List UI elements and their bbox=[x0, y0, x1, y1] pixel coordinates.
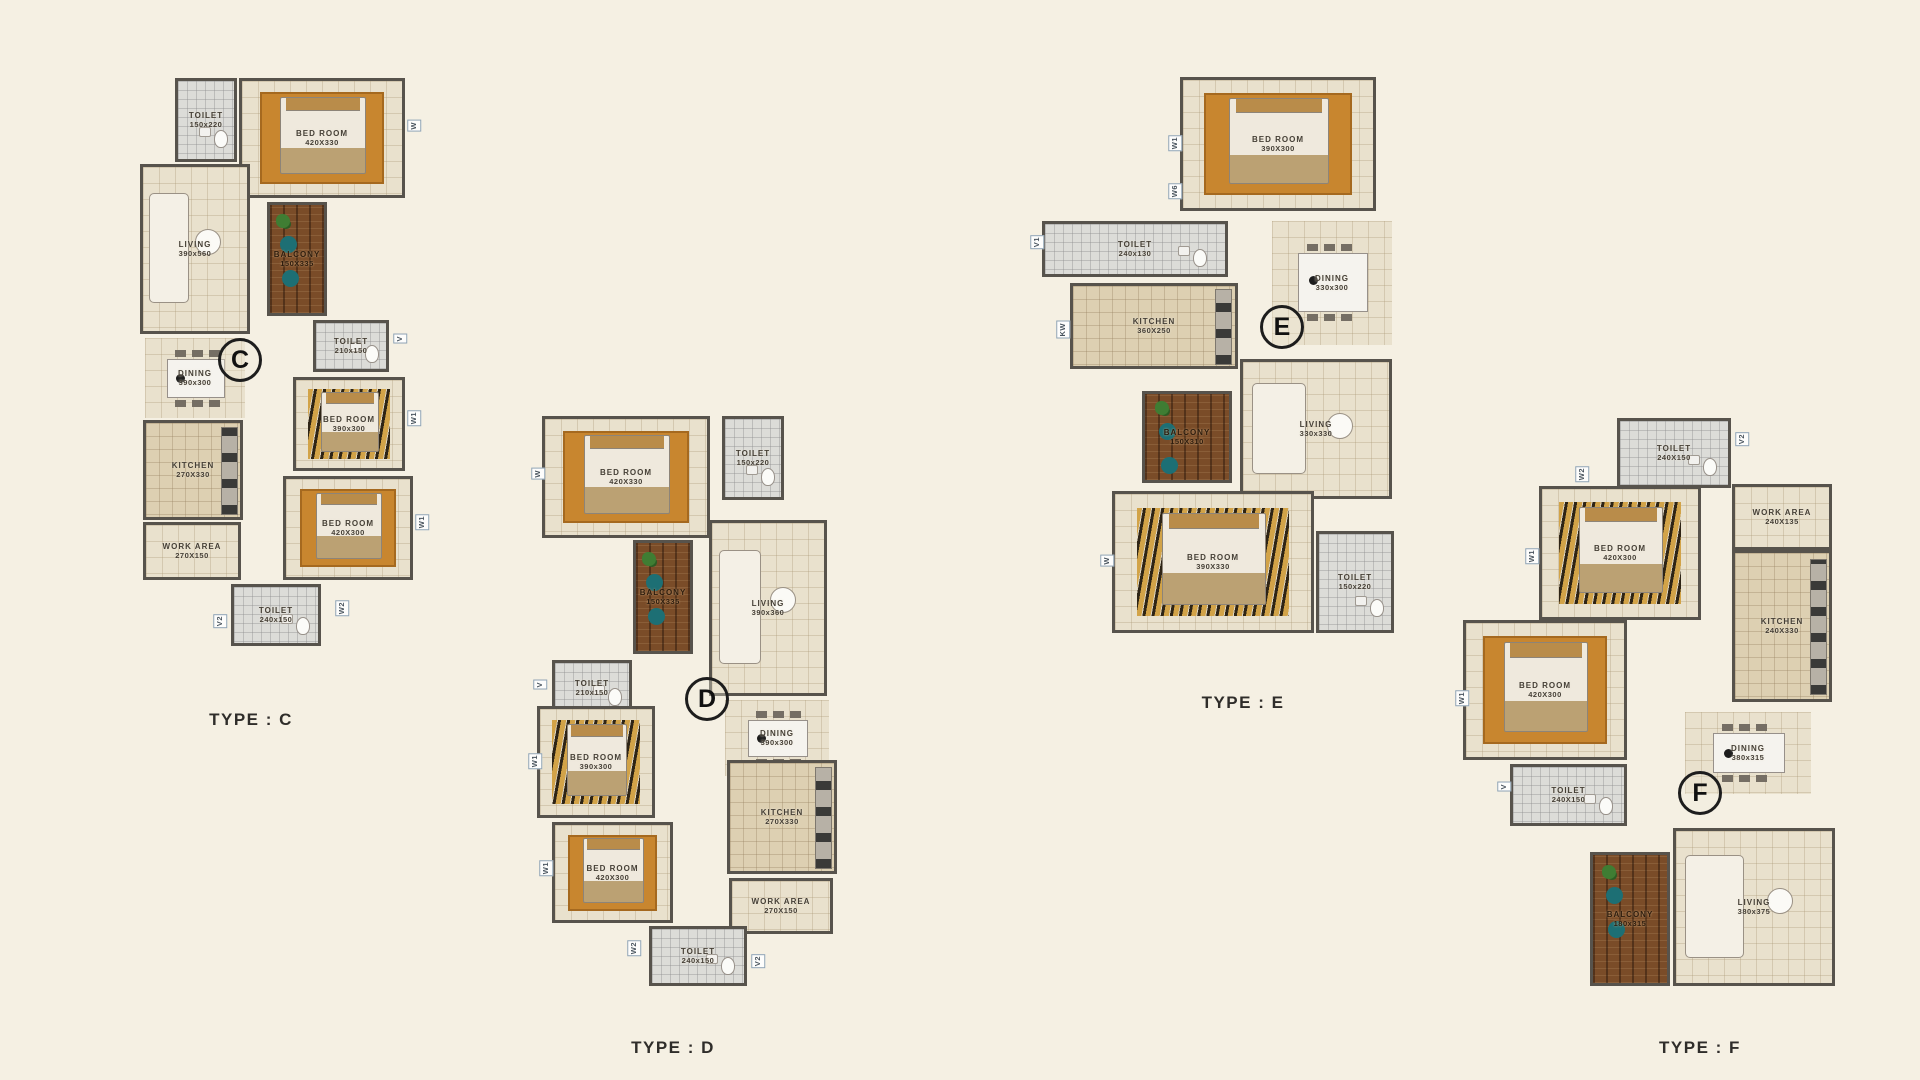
room-name: TOILET bbox=[1551, 786, 1585, 795]
room-name: BED ROOM bbox=[1187, 553, 1239, 562]
room-dims: 240x130 bbox=[1118, 249, 1152, 258]
window-label-w1: W1 bbox=[539, 860, 553, 876]
counter-furniture-icon bbox=[221, 427, 238, 515]
room-name: BED ROOM bbox=[570, 753, 622, 762]
room-label: TOILET240X150 bbox=[1551, 786, 1585, 804]
room-label: BED ROOM420X330 bbox=[296, 129, 348, 147]
room-bed-room: BED ROOM420X330 bbox=[239, 78, 405, 198]
plant-furniture-icon bbox=[276, 214, 290, 228]
room-dims: 150x220 bbox=[1338, 582, 1372, 591]
room-label: DINING380x315 bbox=[1731, 744, 1765, 762]
room-name: WORK AREA bbox=[163, 542, 222, 551]
room-label: BED ROOM420X330 bbox=[600, 468, 652, 486]
room-label: BED ROOM420X300 bbox=[1519, 681, 1571, 699]
room-dims: 240X330 bbox=[1761, 626, 1804, 635]
room-dims: 390x360 bbox=[752, 608, 785, 617]
room-name: TOILET bbox=[736, 449, 770, 458]
room-living: LIVING380x375 bbox=[1673, 828, 1835, 986]
room-label: TOILET150x220 bbox=[736, 449, 770, 467]
room-label: TOILET240x150 bbox=[681, 947, 715, 965]
window-label-w6: W6 bbox=[1168, 183, 1182, 199]
window-label-w1: W1 bbox=[528, 753, 542, 769]
room-bed-room: BED ROOM420X300 bbox=[552, 822, 673, 923]
room-toilet: TOILET150x220 bbox=[175, 78, 237, 162]
window-label-v: V bbox=[1497, 782, 1511, 792]
room-label: KITCHEN240X330 bbox=[1761, 617, 1804, 635]
room-kitchen: KITCHEN270X330 bbox=[727, 760, 837, 874]
window-label-w2: W2 bbox=[627, 940, 641, 956]
window-label-w: W bbox=[407, 120, 421, 132]
room-dims: 390x560 bbox=[179, 249, 212, 258]
room-name: LIVING bbox=[752, 599, 785, 608]
floorplan-sheet: TOILET150x220BED ROOM420X330LIVING390x56… bbox=[0, 0, 1920, 1080]
room-dims: 380x315 bbox=[1731, 753, 1765, 762]
sofa-furniture-icon bbox=[1252, 383, 1307, 473]
wc-furniture-icon bbox=[214, 130, 228, 148]
room-name: KITCHEN bbox=[1133, 317, 1176, 326]
room-name: DINING bbox=[1731, 744, 1765, 753]
plan-type-label-E: TYPE : E bbox=[1202, 693, 1285, 713]
room-toilet: TOILET240X150 bbox=[1617, 418, 1731, 488]
window-label-w: W bbox=[1100, 555, 1114, 567]
room-bed-room: BED ROOM390X300 bbox=[1180, 77, 1376, 211]
room-dims: 390x300 bbox=[570, 762, 622, 771]
sofa-furniture-icon bbox=[1685, 855, 1743, 957]
room-dims: 210x150 bbox=[575, 688, 609, 697]
room-name: TOILET bbox=[334, 337, 368, 346]
room-name: KITCHEN bbox=[761, 808, 804, 817]
room-label: TOILET240x150 bbox=[259, 606, 293, 624]
room-label: BED ROOM420X300 bbox=[1594, 544, 1646, 562]
room-name: DINING bbox=[178, 369, 212, 378]
room-label: DINING390x300 bbox=[760, 729, 794, 747]
plant-furniture-icon bbox=[1602, 865, 1616, 879]
room-dims: 390X330 bbox=[1187, 562, 1239, 571]
room-label: BED ROOM390X330 bbox=[1187, 553, 1239, 571]
plant-furniture-icon bbox=[1155, 401, 1169, 415]
room-name: BED ROOM bbox=[296, 129, 348, 138]
plan-type-label-C: TYPE : C bbox=[209, 710, 293, 730]
window-label-v2: V2 bbox=[1735, 432, 1749, 446]
window-label-w2: W2 bbox=[1575, 466, 1589, 482]
window-label-kw: KW bbox=[1056, 321, 1070, 339]
room-label: TOILET150x220 bbox=[1338, 573, 1372, 591]
room-name: KITCHEN bbox=[1761, 617, 1804, 626]
room-label: BALCONY150X335 bbox=[640, 588, 687, 606]
room-dims: 330x330 bbox=[1300, 429, 1333, 438]
room-work-area: WORK AREA240X135 bbox=[1732, 484, 1832, 550]
room-name: BED ROOM bbox=[587, 864, 639, 873]
room-name: TOILET bbox=[1657, 444, 1691, 453]
room-kitchen: KITCHEN360X250 bbox=[1070, 283, 1238, 369]
room-label: BALCONY150X310 bbox=[1164, 428, 1211, 446]
room-name: TOILET bbox=[189, 111, 223, 120]
room-label: BALCONY150X335 bbox=[274, 250, 321, 268]
room-name: BED ROOM bbox=[1519, 681, 1571, 690]
floorplan-C: TOILET150x220BED ROOM420X330LIVING390x56… bbox=[135, 62, 435, 690]
room-dims: 420X300 bbox=[1519, 690, 1571, 699]
window-label-v1: V1 bbox=[1030, 235, 1044, 249]
room-balcony: BALCONY150X310 bbox=[1142, 391, 1232, 483]
room-dims: 150x220 bbox=[736, 458, 770, 467]
room-name: LIVING bbox=[1300, 420, 1333, 429]
counter-furniture-icon bbox=[1215, 289, 1232, 365]
wc-furniture-icon bbox=[721, 957, 735, 975]
window-label-w: W bbox=[531, 468, 545, 480]
counter-furniture-icon bbox=[815, 767, 832, 868]
room-bed-room: BED ROOM420X330 bbox=[542, 416, 710, 538]
room-toilet: TOILET210x150 bbox=[313, 320, 389, 372]
wc-furniture-icon bbox=[1193, 249, 1207, 267]
room-name: BED ROOM bbox=[1594, 544, 1646, 553]
room-toilet: TOILET240x130 bbox=[1042, 221, 1228, 277]
room-label: WORK AREA270X150 bbox=[163, 542, 222, 560]
floorplan-D: BED ROOM420X330TOILET150x220BALCONY150X3… bbox=[527, 408, 847, 993]
room-dims: 270X150 bbox=[752, 906, 811, 915]
room-label: BED ROOM390x300 bbox=[570, 753, 622, 771]
window-label-v: V bbox=[393, 334, 407, 344]
room-name: TOILET bbox=[1118, 240, 1152, 249]
room-label: WORK AREA270X150 bbox=[752, 897, 811, 915]
room-label: LIVING380x375 bbox=[1738, 898, 1771, 916]
room-balcony: BALCONY150X335 bbox=[267, 202, 327, 316]
room-dims: 390x300 bbox=[178, 378, 212, 387]
room-dims: 150X335 bbox=[640, 597, 687, 606]
plan-marker-C: C bbox=[218, 338, 262, 382]
room-dims: 420X300 bbox=[1594, 553, 1646, 562]
window-label-v2: V2 bbox=[751, 954, 765, 968]
room-bed-room: BED ROOM420X300 bbox=[1463, 620, 1627, 760]
room-toilet: TOILET240X150 bbox=[1510, 764, 1627, 826]
room-label: TOILET240x130 bbox=[1118, 240, 1152, 258]
window-label-w1: W1 bbox=[415, 514, 429, 530]
room-name: DINING bbox=[760, 729, 794, 738]
room-label: DINING390x300 bbox=[178, 369, 212, 387]
window-label-v: V bbox=[533, 680, 547, 690]
room-kitchen: KITCHEN270X330 bbox=[143, 420, 243, 520]
room-label: BED ROOM390x300 bbox=[323, 415, 375, 433]
room-label: KITCHEN270X330 bbox=[761, 808, 804, 826]
room-dims: 270X150 bbox=[163, 551, 222, 560]
room-label: BALCONY180x315 bbox=[1607, 910, 1654, 928]
room-dims: 240x150 bbox=[259, 615, 293, 624]
room-dims: 420X300 bbox=[587, 873, 639, 882]
room-dims: 420X300 bbox=[322, 528, 374, 537]
room-name: BED ROOM bbox=[1252, 135, 1304, 144]
room-toilet: TOILET240x150 bbox=[231, 584, 321, 646]
room-name: BED ROOM bbox=[600, 468, 652, 477]
room-living: LIVING330x330 bbox=[1240, 359, 1392, 499]
room-label: LIVING330x330 bbox=[1300, 420, 1333, 438]
room-bed-room: BED ROOM390X330 bbox=[1112, 491, 1314, 633]
window-label-w1: W1 bbox=[407, 410, 421, 426]
room-work-area: WORK AREA270X150 bbox=[143, 522, 241, 580]
room-name: BED ROOM bbox=[323, 415, 375, 424]
room-name: LIVING bbox=[1738, 898, 1771, 907]
room-dims: 240X135 bbox=[1753, 517, 1812, 526]
room-label: LIVING390x360 bbox=[752, 599, 785, 617]
room-label: KITCHEN360X250 bbox=[1133, 317, 1176, 335]
room-name: TOILET bbox=[1338, 573, 1372, 582]
room-label: TOILET240X150 bbox=[1657, 444, 1691, 462]
wc-furniture-icon bbox=[608, 688, 622, 706]
room-label: BED ROOM420X300 bbox=[587, 864, 639, 882]
room-balcony: BALCONY180x315 bbox=[1590, 852, 1670, 986]
room-bed-room: BED ROOM390x300 bbox=[537, 706, 655, 818]
room-dims: 150X310 bbox=[1164, 437, 1211, 446]
room-name: KITCHEN bbox=[172, 461, 215, 470]
room-dims: 380x375 bbox=[1738, 907, 1771, 916]
room-dims: 240X150 bbox=[1657, 453, 1691, 462]
room-dims: 180x315 bbox=[1607, 919, 1654, 928]
room-bed-room: BED ROOM420X300 bbox=[283, 476, 413, 580]
room-name: DINING bbox=[1315, 274, 1349, 283]
room-label: TOILET210x150 bbox=[334, 337, 368, 355]
window-label-w1: W1 bbox=[1525, 548, 1539, 564]
room-label: LIVING390x560 bbox=[179, 240, 212, 258]
room-name: BALCONY bbox=[274, 250, 321, 259]
room-dims: 360X250 bbox=[1133, 326, 1176, 335]
plan-type-label-D: TYPE : D bbox=[631, 1038, 715, 1058]
room-name: TOILET bbox=[259, 606, 293, 615]
counter-furniture-icon bbox=[1810, 559, 1827, 695]
plant-furniture-icon bbox=[642, 552, 656, 566]
room-name: TOILET bbox=[681, 947, 715, 956]
room-balcony: BALCONY150X335 bbox=[633, 540, 693, 654]
room-dims: 240x150 bbox=[681, 956, 715, 965]
room-toilet: TOILET240x150 bbox=[649, 926, 747, 986]
room-label: BED ROOM390X300 bbox=[1252, 135, 1304, 153]
room-name: LIVING bbox=[179, 240, 212, 249]
room-name: BALCONY bbox=[1607, 910, 1654, 919]
room-dims: 390X300 bbox=[1252, 144, 1304, 153]
window-label-v2: V2 bbox=[213, 614, 227, 628]
floorplan-E: BED ROOM390X300TOILET240x130DINING330x30… bbox=[1030, 73, 1400, 663]
room-dims: 390x300 bbox=[760, 738, 794, 747]
window-label-w2: W2 bbox=[335, 600, 349, 616]
window-label-w1: W1 bbox=[1455, 690, 1469, 706]
room-dims: 210x150 bbox=[334, 346, 368, 355]
wc-furniture-icon bbox=[1599, 797, 1613, 815]
floorplan-F: TOILET240X150BED ROOM420X300WORK AREA240… bbox=[1455, 404, 1841, 994]
wc-furniture-icon bbox=[1703, 458, 1717, 476]
wc-furniture-icon bbox=[296, 617, 310, 635]
room-dims: 150x220 bbox=[189, 120, 223, 129]
room-dims: 240X150 bbox=[1551, 795, 1585, 804]
room-label: TOILET150x220 bbox=[189, 111, 223, 129]
room-name: BALCONY bbox=[640, 588, 687, 597]
plan-marker-D: D bbox=[685, 677, 729, 721]
room-dims: 330x300 bbox=[1315, 283, 1349, 292]
room-dims: 150X335 bbox=[274, 259, 321, 268]
room-name: WORK AREA bbox=[752, 897, 811, 906]
room-label: TOILET210x150 bbox=[575, 679, 609, 697]
wc-furniture-icon bbox=[761, 468, 775, 486]
room-dims: 270X330 bbox=[761, 817, 804, 826]
room-dims: 420X330 bbox=[296, 138, 348, 147]
room-toilet: TOILET150x220 bbox=[722, 416, 784, 500]
room-label: DINING330x300 bbox=[1315, 274, 1349, 292]
room-living: LIVING390x560 bbox=[140, 164, 250, 334]
room-label: BED ROOM420X300 bbox=[322, 519, 374, 537]
room-toilet: TOILET150x220 bbox=[1316, 531, 1394, 633]
room-bed-room: BED ROOM420X300 bbox=[1539, 486, 1701, 620]
room-living: LIVING390x360 bbox=[709, 520, 827, 696]
room-name: WORK AREA bbox=[1753, 508, 1812, 517]
room-dims: 390x300 bbox=[323, 424, 375, 433]
plan-marker-F: F bbox=[1678, 771, 1722, 815]
window-label-w1: W1 bbox=[1168, 135, 1182, 151]
room-name: TOILET bbox=[575, 679, 609, 688]
room-name: BED ROOM bbox=[322, 519, 374, 528]
room-name: BALCONY bbox=[1164, 428, 1211, 437]
room-dims: 420X330 bbox=[600, 477, 652, 486]
room-bed-room: BED ROOM390x300 bbox=[293, 377, 405, 471]
plan-type-label-F: TYPE : F bbox=[1659, 1038, 1741, 1058]
room-label: WORK AREA240X135 bbox=[1753, 508, 1812, 526]
room-kitchen: KITCHEN240X330 bbox=[1732, 550, 1832, 702]
wc-furniture-icon bbox=[1370, 599, 1384, 617]
room-label: KITCHEN270X330 bbox=[172, 461, 215, 479]
room-dims: 270X330 bbox=[172, 470, 215, 479]
plan-marker-E: E bbox=[1260, 305, 1304, 349]
